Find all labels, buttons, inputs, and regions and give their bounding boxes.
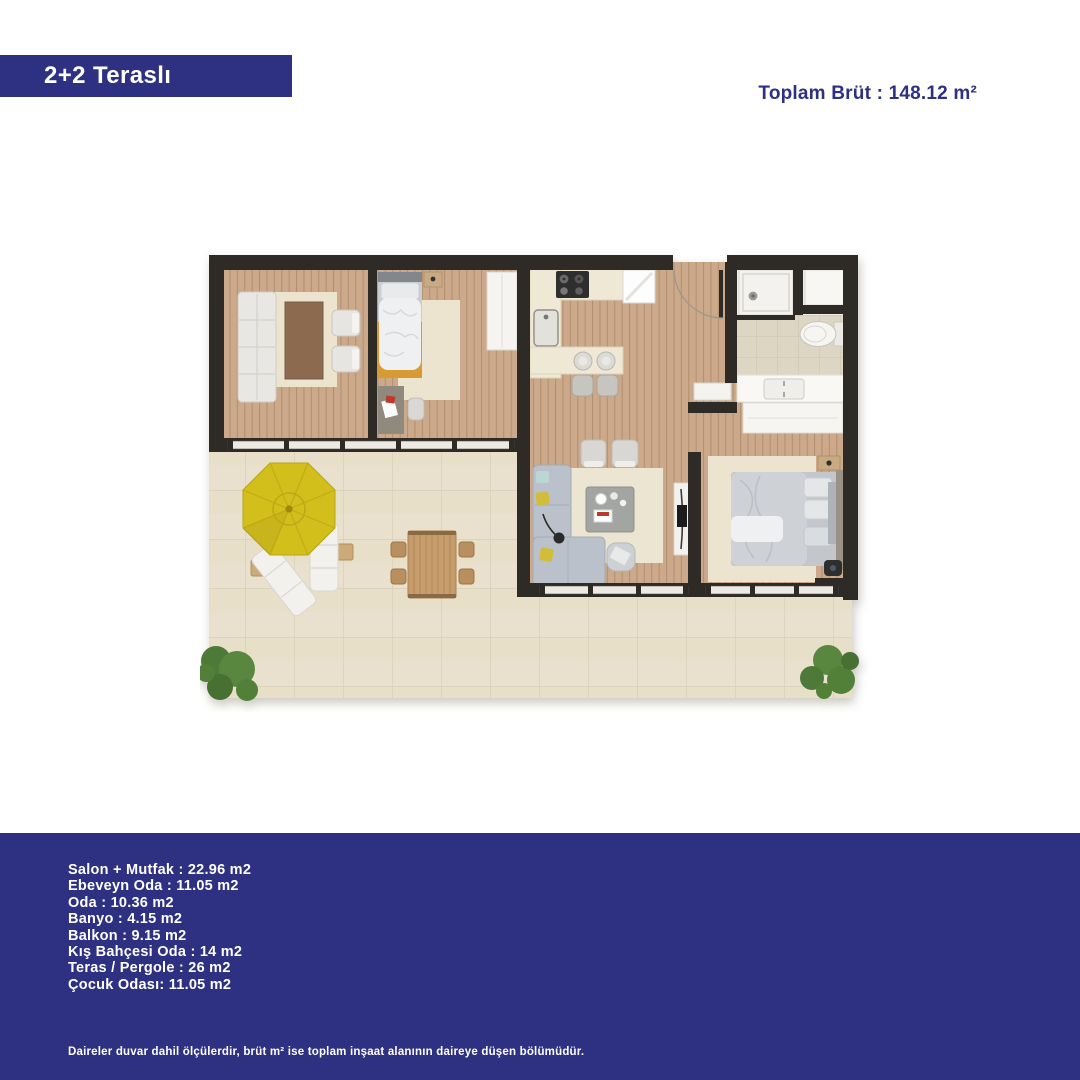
umbrella [243, 463, 335, 555]
dining-chair [391, 542, 406, 557]
armchair [332, 346, 360, 372]
dining-chair [459, 542, 474, 557]
floor-plan-container [200, 248, 870, 712]
nightstand [818, 456, 840, 470]
pouf [607, 543, 635, 571]
sink [534, 310, 558, 346]
brochure-page: 2+2 Teraslı Toplam Brüt : 148.12 m² [0, 0, 1080, 1080]
room-area-item: Salon + Mutfak : 22.96 m2 [68, 862, 251, 878]
stool [597, 375, 618, 396]
chair [612, 440, 638, 467]
room-area-item: Balkon : 9.15 m2 [68, 928, 251, 944]
unit-title: 2+2 Teraslı [44, 62, 171, 90]
room-area-item: Kış Bahçesi Oda : 14 m2 [68, 944, 251, 960]
sofa [238, 292, 276, 402]
total-gross-area: Toplam Brüt : 148.12 m² [758, 83, 977, 105]
room-area-item: Ebeveyn Oda : 11.05 m2 [68, 878, 251, 894]
room-area-item: Çocuk Odası: 11.05 m2 [68, 977, 251, 993]
rug-center [285, 302, 323, 379]
vanity-sink [737, 375, 844, 402]
stool [572, 375, 593, 396]
room-area-item: Teras / Pergole : 26 m2 [68, 960, 251, 976]
bed [378, 272, 422, 378]
tv-icon [677, 505, 687, 527]
double-bed [731, 470, 844, 570]
room-area-list: Salon + Mutfak : 22.96 m2 Ebeveyn Oda : … [68, 862, 251, 993]
room-area-item: Oda : 10.36 m2 [68, 895, 251, 911]
armchair [332, 310, 360, 336]
toilet [800, 322, 844, 347]
disclaimer-text: Daireler duvar dahil ölçülerdir, brüt m²… [68, 1046, 584, 1058]
dining-chair [459, 569, 474, 584]
shower [739, 270, 793, 315]
chair [581, 440, 606, 467]
room-area-item: Banyo : 4.15 m2 [68, 911, 251, 927]
master-bedroom [708, 456, 844, 582]
tv-console [674, 483, 690, 555]
footer-panel: Salon + Mutfak : 22.96 m2 Ebeveyn Oda : … [0, 833, 1080, 1080]
stove [556, 271, 589, 298]
hall-cabinet [694, 383, 731, 400]
bath-closet [805, 270, 844, 305]
coffee-table [586, 487, 634, 532]
nightstand [824, 560, 842, 576]
nightstand [424, 272, 442, 287]
side-table [337, 544, 353, 560]
unit-title-banner: 2+2 Teraslı [0, 55, 292, 97]
floor-plan [200, 248, 870, 712]
dining-chair [391, 569, 406, 584]
